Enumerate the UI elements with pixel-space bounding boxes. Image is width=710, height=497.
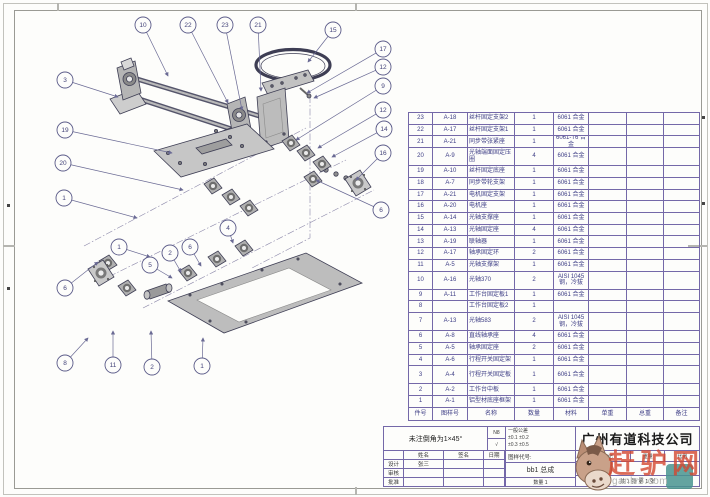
svg-text:21: 21 [254, 22, 262, 29]
bom-cell-remark [663, 260, 699, 271]
bom-cell-material: AISI 1045 钢，冷拔 [553, 272, 588, 289]
bom-cell-material: 6061 合金 [553, 248, 588, 259]
bom-cell-item: 1 [409, 396, 432, 407]
bom-cell-code: A-4 [432, 366, 467, 383]
bom-cell-material: 6061-T6 合金 [553, 136, 588, 147]
bom-cell-totalweight [626, 248, 663, 259]
bom-cell-item: 12 [409, 248, 432, 259]
bom-row: 13A-19联轴器16061 合金 [409, 235, 699, 247]
bom-cell-code: A-17 [432, 248, 467, 259]
bom-cell-item: 15 [409, 213, 432, 224]
bom-cell-name: 工作台中板 [467, 384, 514, 395]
bom-cell-remark [663, 148, 699, 165]
bom-cell-unitweight [588, 213, 626, 224]
title-block: 未注倒角为1×45° N8 √ 一般公差 ±0.1 ±0.2 ±0.3 ±0.5… [383, 426, 700, 487]
bom-row: 4A-6行程开关固定架16061 合金 [409, 354, 699, 366]
bom-cell-name: 名称 [467, 408, 514, 420]
parts [110, 50, 362, 334]
balloon-10: 10 [135, 17, 168, 76]
svg-text:3: 3 [63, 77, 67, 84]
stage-values [576, 462, 699, 476]
bom-cell-unitweight [588, 313, 626, 330]
bom-cell-code: A-13 [432, 225, 467, 236]
bom-row: 6A-8直线轴承座46061 合金 [409, 330, 699, 342]
bom-cell-code: A-13 [432, 313, 467, 330]
bom-cell-material: 材料 [553, 408, 588, 420]
part-bearing-block [208, 251, 226, 267]
bom-cell-totalweight [626, 225, 663, 236]
bom-cell-item: 18 [409, 178, 432, 189]
bom-cell-unitweight: 单重 [588, 408, 626, 420]
bom-cell-name: 同步带张紧座 [467, 136, 514, 147]
bom-cell-totalweight [626, 396, 663, 407]
bom-cell-totalweight [626, 178, 663, 189]
svg-text:1: 1 [117, 244, 121, 251]
bom-cell-name: 光轴583 [467, 313, 514, 330]
bom-cell-material: 6061 合金 [553, 225, 588, 236]
bom-row: 8工作台固定板21 [409, 300, 699, 312]
bom-cell-code: A-20 [432, 201, 467, 212]
bom-cell-unitweight [588, 272, 626, 289]
bom-cell-name: 光轴370 [467, 272, 514, 289]
bom-cell-code: A-10 [432, 166, 467, 177]
balloon-6: 6 [182, 239, 201, 266]
svg-text:1: 1 [200, 363, 204, 370]
bom-cell-unitweight [588, 384, 626, 395]
bom-cell-unitweight [588, 355, 626, 366]
bom-cell-material: 6061 合金 [553, 331, 588, 342]
finish-symbol: √ [488, 439, 505, 450]
bom-row: 9A-11工作台固定板116061 合金 [409, 289, 699, 301]
bom-cell-material: 6061 合金 [553, 190, 588, 201]
bom-cell-unitweight [588, 366, 626, 383]
bom-cell-item: 19 [409, 166, 432, 177]
bom-cell-qty: 4 [514, 148, 553, 165]
bom-cell-remark [663, 384, 699, 395]
sign-cell: 张三 [404, 460, 444, 468]
surface-finish: N8 √ [488, 427, 506, 450]
bom-cell-qty: 2 [514, 272, 553, 289]
bom-cell-remark [663, 190, 699, 201]
bom-cell-material: 6061 合金 [553, 113, 588, 124]
bom-cell-material: 6061 合金 [553, 148, 588, 165]
bom-cell-unitweight [588, 125, 626, 136]
bom-row: 17A-21电机固定支架16061 合金 [409, 189, 699, 201]
bom-cell-item: 20 [409, 148, 432, 165]
bom-cell-code [432, 301, 467, 312]
bom-cell-unitweight [588, 225, 626, 236]
bom-cell-unitweight [588, 331, 626, 342]
bom-cell-code: A-21 [432, 136, 467, 147]
svg-text:15: 15 [329, 27, 337, 34]
svg-text:2: 2 [150, 364, 154, 371]
bom-cell-item: 11 [409, 260, 432, 271]
bom-cell-totalweight [626, 166, 663, 177]
bom-cell-item: 17 [409, 190, 432, 201]
bom-row: 2A-2工作台中板16061 合金 [409, 383, 699, 395]
sign-cell [484, 478, 505, 486]
bom-cell-item: 2 [409, 384, 432, 395]
bom-cell-totalweight [626, 343, 663, 354]
bom-cell-qty: 1 [514, 290, 553, 301]
sign-cell [444, 469, 484, 477]
balloon-1: 1 [194, 338, 210, 374]
bom-cell-name: 光轴支撑架 [467, 260, 514, 271]
bom-cell-item: 6 [409, 331, 432, 342]
balloon-23: 23 [217, 17, 242, 110]
svg-text:20: 20 [59, 160, 67, 167]
bom-cell-qty: 1 [514, 166, 553, 177]
bom-cell-remark [663, 225, 699, 236]
bom-cell-unitweight [588, 236, 626, 247]
bom-cell-item: 14 [409, 225, 432, 236]
bom-cell-code: A-1 [432, 396, 467, 407]
bom-cell-qty: 1 [514, 136, 553, 147]
bom-cell-material: 6061 合金 [553, 236, 588, 247]
svg-text:16: 16 [379, 150, 387, 157]
bom-cell-name: 工作台固定板2 [467, 301, 514, 312]
sign-cell [444, 460, 484, 468]
finish-grade: N8 [488, 427, 505, 439]
part-clamp-ring [256, 50, 330, 99]
bom-cell-unitweight [588, 148, 626, 165]
svg-text:8: 8 [63, 360, 67, 367]
bom-cell-name: 丝杆固定底座 [467, 166, 514, 177]
bom-cell-item: 16 [409, 201, 432, 212]
bom-cell-code: A-11 [432, 290, 467, 301]
bom-cell-qty: 1 [514, 396, 553, 407]
part-end-bracket [110, 58, 146, 114]
bom-cell-qty: 数量 [514, 408, 553, 420]
tolerance-line: ±0.1 ±0.2 [508, 435, 573, 442]
svg-text:6: 6 [188, 244, 192, 251]
weight-label: 重量 [631, 451, 666, 461]
bom-cell-code: A-7 [432, 178, 467, 189]
bom-cell-remark [663, 113, 699, 124]
balloon-2: 2 [144, 331, 160, 375]
drawing-id-block: 图样代号: bb1 总成 数量 1 [506, 451, 576, 486]
bom-cell-name: 电机固定支架 [467, 190, 514, 201]
bom-cell-name: 同步带轮支架 [467, 178, 514, 189]
sign-header-row: 姓名签名日期 [384, 451, 505, 460]
bom-cell-material: 6061 合金 [553, 343, 588, 354]
bom-cell-code: 图样号 [432, 408, 467, 420]
sign-row: 审核 [384, 469, 505, 478]
part-coupling [144, 284, 172, 299]
svg-text:5: 5 [148, 262, 152, 269]
bom-row: 12A-17轴承固定环26061 合金 [409, 247, 699, 259]
bom-cell-remark [663, 355, 699, 366]
stage-label: 阶段标记 [576, 451, 631, 461]
bom-row: 23A-18丝杆固定支架216061 合金 [409, 113, 699, 124]
bom-cell-totalweight [626, 301, 663, 312]
balloon-4: 4 [220, 220, 236, 243]
bom-cell-qty: 2 [514, 343, 553, 354]
sign-cell [384, 451, 404, 459]
bom-cell-unitweight [588, 201, 626, 212]
bom-cell-totalweight [626, 366, 663, 383]
bom-row: 11A-5光轴支撑架16061 合金 [409, 259, 699, 271]
bom-cell-code: A-6 [432, 355, 467, 366]
bom-cell-code: A-5 [432, 260, 467, 271]
bom-cell-item: 13 [409, 236, 432, 247]
part-mounting-plate [154, 124, 274, 177]
bom-cell-remark [663, 125, 699, 136]
part-bearing-block [240, 200, 258, 216]
chamfer-note: 未注倒角为1×45° [384, 427, 488, 450]
balloon-1: 1 [111, 239, 150, 257]
bom-cell-name: 丝杆固定支架2 [467, 113, 514, 124]
bom-cell-unitweight [588, 136, 626, 147]
bom-cell-name: 铝型材底座框架 [467, 396, 514, 407]
bom-cell-material: 6061 合金 [553, 125, 588, 136]
bom-cell-remark [663, 236, 699, 247]
bom-cell-material [553, 301, 588, 312]
bom-cell-unitweight [588, 178, 626, 189]
bom-cell-totalweight [626, 355, 663, 366]
bom-cell-qty: 4 [514, 225, 553, 236]
sign-cell [444, 478, 484, 486]
bom-cell-item: 22 [409, 125, 432, 136]
bom-cell-totalweight [626, 272, 663, 289]
bom-cell-remark [663, 166, 699, 177]
bom-cell-totalweight: 总重 [626, 408, 663, 420]
bom-cell-item: 4 [409, 355, 432, 366]
sign-cell [404, 469, 444, 477]
bom-cell-name: 行程开关固定板 [467, 366, 514, 383]
part-bearing-block [118, 280, 136, 296]
bom-cell-qty: 1 [514, 178, 553, 189]
bom-row: 18A-7同步带轮支架16061 合金 [409, 177, 699, 189]
bom-cell-remark [663, 313, 699, 330]
bom-cell-code: A-16 [432, 272, 467, 289]
sign-row: 批准 [384, 478, 505, 486]
quantity-note: 数量 1 [506, 478, 575, 486]
bom-cell-item: 件号 [409, 408, 432, 420]
bom-cell-material: 6061 合金 [553, 213, 588, 224]
sign-cell: 签名 [444, 451, 484, 459]
bom-cell-name: 光轴支撑座 [467, 213, 514, 224]
svg-text:23: 23 [221, 22, 229, 29]
bom-cell-material: AISI 1045 钢，冷拔 [553, 313, 588, 330]
bom-cell-material: 6061 合金 [553, 396, 588, 407]
bom-cell-remark [663, 366, 699, 383]
bom-cell-qty: 1 [514, 201, 553, 212]
signature-grid: 姓名签名日期设计张三审核批准 [384, 451, 506, 486]
bom-cell-unitweight [588, 260, 626, 271]
bom-cell-material: 6061 合金 [553, 384, 588, 395]
bom-cell-remark [663, 331, 699, 342]
bom-row: 7A-13光轴5832AISI 1045 钢，冷拔 [409, 312, 699, 330]
svg-text:10: 10 [139, 22, 147, 29]
balloon-3: 3 [57, 72, 118, 97]
svg-text:22: 22 [184, 22, 192, 29]
bom-cell-code: A-17 [432, 125, 467, 136]
bom-cell-totalweight [626, 190, 663, 201]
bom-cell-item: 21 [409, 136, 432, 147]
bom-cell-code: A-2 [432, 384, 467, 395]
svg-text:6: 6 [379, 207, 383, 214]
bom-cell-name: 轴承固定环 [467, 248, 514, 259]
bom-cell-totalweight [626, 331, 663, 342]
bom-cell-remark [663, 396, 699, 407]
tolerance-line: ±0.3 ±0.5 [508, 442, 573, 449]
bom-cell-qty: 1 [514, 125, 553, 136]
svg-text:4: 4 [226, 225, 230, 232]
bom-cell-totalweight [626, 136, 663, 147]
bom-cell-qty: 4 [514, 331, 553, 342]
svg-text:14: 14 [380, 126, 388, 133]
bom-cell-remark [663, 248, 699, 259]
bom-cell-totalweight [626, 213, 663, 224]
bom-cell-name: 行程开关固定架 [467, 355, 514, 366]
bom-cell-item: 8 [409, 301, 432, 312]
svg-text:6: 6 [63, 285, 67, 292]
bom-cell-unitweight [588, 113, 626, 124]
bom-cell-remark [663, 290, 699, 301]
bom-cell-remark [663, 272, 699, 289]
bom-cell-qty: 1 [514, 213, 553, 224]
bom-cell-qty: 1 [514, 355, 553, 366]
balloon-2: 2 [162, 245, 181, 272]
bom-cell-totalweight [626, 384, 663, 395]
bom-cell-qty: 2 [514, 248, 553, 259]
bom-cell-remark [663, 213, 699, 224]
bom-cell-name: 光轴固定座 [467, 225, 514, 236]
bom-cell-unitweight [588, 396, 626, 407]
bom-cell-name: 工作台固定板1 [467, 290, 514, 301]
bom-cell-name: 轴承固定座 [467, 343, 514, 354]
bom-cell-name: 丝杆固定支架1 [467, 125, 514, 136]
bom-row: 16A-20电机座16061 合金 [409, 200, 699, 212]
bom-cell-item: 5 [409, 343, 432, 354]
bom-cell-item: 23 [409, 113, 432, 124]
bom-cell-material: 6061 合金 [553, 366, 588, 383]
bom-cell-unitweight [588, 248, 626, 259]
bom-cell-totalweight [626, 290, 663, 301]
svg-text:11: 11 [110, 362, 117, 369]
svg-text:19: 19 [61, 127, 69, 134]
bom-cell-qty: 2 [514, 313, 553, 330]
bom-cell-code: A-5 [432, 343, 467, 354]
sign-cell [404, 478, 444, 486]
svg-text:17: 17 [379, 46, 387, 53]
bom-cell-remark [663, 178, 699, 189]
bom-cell-name: 联轴器 [467, 236, 514, 247]
svg-text:12: 12 [379, 107, 387, 114]
bom-cell-remark: 备注 [663, 408, 699, 420]
svg-text:12: 12 [379, 64, 387, 71]
drawing-code-label: 图样代号: [506, 451, 575, 463]
scale-weight-block: 阶段标记 重量 比例 共 1 张 第 1 张 [576, 451, 699, 486]
bom-cell-qty: 1 [514, 113, 553, 124]
bom-cell-qty: 1 [514, 260, 553, 271]
part-flange-plate [345, 170, 371, 196]
bom-cell-name: 光轴端面固定压圈 [467, 148, 514, 165]
sheet-count: 共 1 张 第 1 张 [576, 476, 699, 486]
drawing-name: bb1 总成 [506, 463, 575, 478]
sign-cell [484, 460, 505, 468]
bom-cell-unitweight [588, 166, 626, 177]
bom-cell-code: A-9 [432, 148, 467, 165]
sign-cell [484, 469, 505, 477]
bom-cell-unitweight [588, 343, 626, 354]
bom-cell-qty: 1 [514, 301, 553, 312]
bom-cell-totalweight [626, 313, 663, 330]
drawing-sheet: 102223211517129121416631920161256481121 … [0, 0, 710, 497]
bom-row: 19A-10丝杆固定底座16061 合金 [409, 165, 699, 177]
bom-row: 1A-1铝型材底座框架16061 合金 [409, 395, 699, 407]
svg-text:1: 1 [62, 195, 66, 202]
part-bearing-block [297, 145, 315, 161]
part-bearing-block [222, 189, 240, 205]
bom-row: 21A-21同步带张紧座16061-T6 合金 [409, 135, 699, 147]
bom-row: 3A-4行程开关固定板16061 合金 [409, 365, 699, 383]
bom-cell-material: 6061 合金 [553, 178, 588, 189]
bom-cell-material: 6061 合金 [553, 166, 588, 177]
part-bearing-block [235, 240, 253, 256]
bom-cell-item: 10 [409, 272, 432, 289]
bom-header-row: 件号图样号名称数量材料单重总重备注 [409, 407, 699, 420]
bom-cell-totalweight [626, 148, 663, 165]
sign-cell: 审核 [384, 469, 404, 477]
bom-row: 5A-5轴承固定座26061 合金 [409, 342, 699, 354]
balloon-1: 1 [56, 190, 137, 218]
bom-cell-material: 6061 合金 [553, 201, 588, 212]
balloon-8: 8 [57, 338, 88, 371]
bom-cell-totalweight [626, 260, 663, 271]
bom-cell-totalweight [626, 125, 663, 136]
sign-cell: 日期 [484, 451, 505, 459]
bom-cell-remark [663, 343, 699, 354]
bom-cell-remark [663, 201, 699, 212]
bom-cell-material: 6061 合金 [553, 290, 588, 301]
bom-cell-qty: 1 [514, 384, 553, 395]
bom-row: 15A-14光轴支撑座16061 合金 [409, 212, 699, 224]
bom-cell-code: A-18 [432, 113, 467, 124]
sign-row: 设计张三 [384, 460, 505, 469]
bom-cell-totalweight [626, 201, 663, 212]
bom-cell-unitweight [588, 290, 626, 301]
scale-label: 比例 [665, 451, 699, 461]
bom-cell-unitweight [588, 190, 626, 201]
part-base-frame-plate [168, 253, 362, 333]
sign-cell: 批准 [384, 478, 404, 486]
bom-cell-code: A-19 [432, 236, 467, 247]
bom-cell-material: 6061 合金 [553, 355, 588, 366]
bom-cell-qty: 1 [514, 366, 553, 383]
bom-cell-name: 直线轴承座 [467, 331, 514, 342]
svg-text:2: 2 [168, 250, 172, 257]
tolerance-box: 一般公差 ±0.1 ±0.2 ±0.3 ±0.5 [506, 427, 576, 450]
bom-cell-item: 3 [409, 366, 432, 383]
bom-row: 14A-13光轴固定座46061 合金 [409, 224, 699, 236]
bom-cell-material: 6061 合金 [553, 260, 588, 271]
part-bearing-block [179, 265, 197, 281]
bom-row: 10A-16光轴3702AISI 1045 钢，冷拔 [409, 271, 699, 289]
bom-cell-item: 9 [409, 290, 432, 301]
balloon-16: 16 [356, 145, 391, 180]
sign-cell: 设计 [384, 460, 404, 468]
svg-text:9: 9 [381, 83, 385, 90]
bom-cell-totalweight [626, 113, 663, 124]
balloon-11: 11 [105, 331, 121, 373]
bom-cell-remark [663, 136, 699, 147]
bom-cell-unitweight [588, 301, 626, 312]
bom-cell-qty: 1 [514, 236, 553, 247]
bom-cell-code: A-8 [432, 331, 467, 342]
part-bearing-block [204, 178, 222, 194]
